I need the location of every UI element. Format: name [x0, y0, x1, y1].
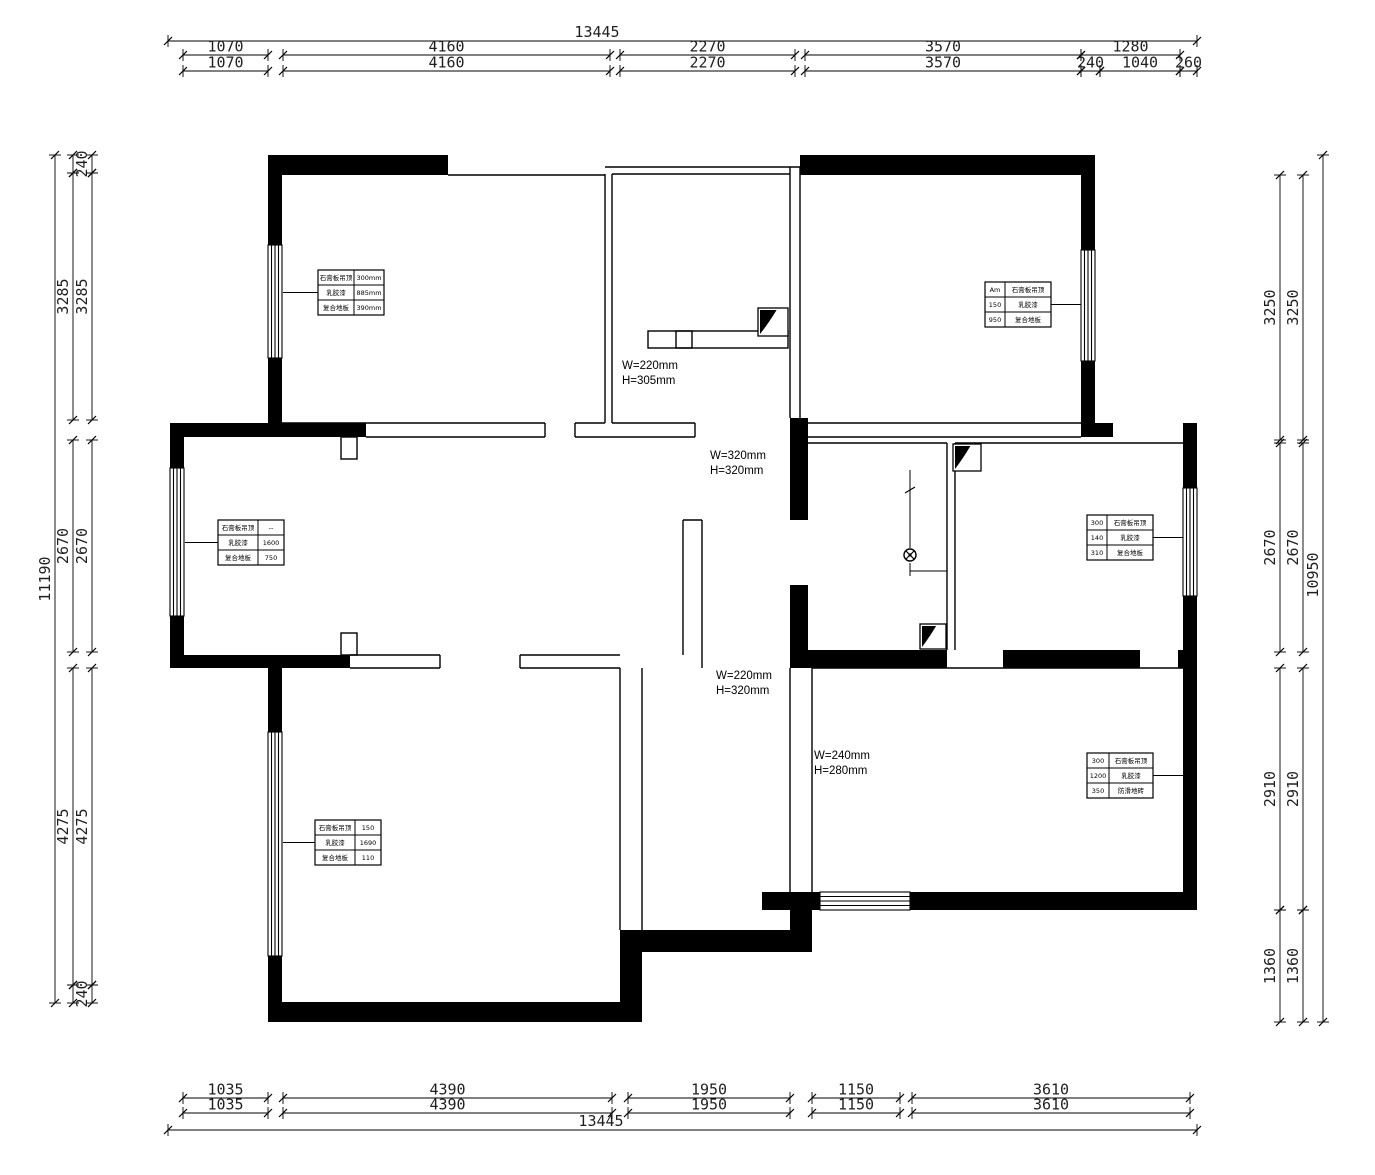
dim-text: 13445 [574, 23, 619, 41]
dim-text: 2910 [1284, 771, 1302, 807]
wall-segment [762, 892, 820, 910]
dim-text: 乳胶漆 [228, 538, 248, 547]
dim-text: 复合地板 [1117, 548, 1144, 557]
dim-text: 260 [1175, 54, 1202, 72]
dim-text: 石膏板吊顶 [1115, 756, 1148, 765]
dim-text: -- [269, 524, 274, 532]
dim-text: 140 [1091, 534, 1103, 542]
dim-text: 防滑地砖 [1118, 786, 1145, 795]
size-annotation: W=240mm [814, 750, 870, 762]
dim-text: 300mm [356, 274, 381, 282]
dim-text: 石膏板吊顶 [222, 523, 255, 532]
finish-table: 300石膏板吊顶1200乳胶漆350防滑地砖 [1087, 753, 1183, 798]
wall-segment [170, 655, 350, 668]
dim-text: 150 [362, 824, 374, 832]
dim-text: 1200 [1090, 772, 1107, 780]
wall-segment [341, 437, 357, 459]
finish-table: 石膏板吊顶150乳胶漆1690复合地板110 [283, 820, 381, 865]
dim-text: 885mm [356, 289, 381, 297]
window [820, 892, 910, 910]
light-symbol [904, 470, 947, 576]
dim-text: 石膏板吊顶 [1114, 518, 1147, 527]
wall-segment [1081, 423, 1113, 437]
size-annotation: W=320mm [710, 450, 766, 462]
window [1081, 250, 1095, 361]
wall-segment [790, 418, 808, 520]
dim-text: 1600 [263, 539, 280, 547]
finish-table: Am石膏板吊顶150乳胶漆950复合地板 [985, 282, 1081, 327]
size-annotation: H=320mm [710, 465, 763, 477]
dim-text: 4160 [428, 54, 464, 72]
dim-text: 3570 [925, 54, 961, 72]
dim-text: 10950 [1304, 552, 1322, 597]
dim-text: 复合地板 [225, 553, 252, 562]
dim-text: 3285 [73, 278, 91, 314]
dim-text: 乳胶漆 [325, 838, 345, 847]
dim-text: 390mm [356, 304, 381, 312]
finish-table: 石膏板吊顶300mm乳胶漆885mm复合地板390mm [283, 270, 384, 315]
wall-segment [620, 930, 812, 952]
wall-segment [790, 585, 808, 668]
wall-segment [170, 423, 184, 468]
wall-segment [170, 423, 366, 437]
dim-text: 110 [362, 854, 374, 862]
finish-table: 石膏板吊顶--乳胶漆1600复合地板750 [185, 520, 284, 565]
counter-bracket [676, 331, 692, 348]
dim-text: 3285 [54, 278, 72, 314]
dim-text: 11190 [36, 556, 54, 601]
size-annotation: H=305mm [622, 375, 675, 387]
plan-shape [908, 553, 911, 556]
dim-text: 750 [265, 554, 277, 562]
wall-segment [268, 668, 282, 732]
window [1183, 488, 1197, 596]
dim-text: 乳胶漆 [326, 288, 346, 297]
size-annotation: H=280mm [814, 765, 867, 777]
finish-table: 300石膏板吊顶140乳胶漆310复合地板 [1087, 515, 1183, 560]
dim-text: 石膏板吊顶 [1012, 285, 1045, 294]
wall-segment [808, 650, 947, 668]
dim-text: 1360 [1284, 948, 1302, 984]
shaft-symbol [758, 308, 788, 336]
dim-text: 3250 [1284, 289, 1302, 325]
dim-text: 240 [73, 980, 91, 1007]
wall-segment [1003, 650, 1140, 668]
wall-segment [268, 1002, 642, 1022]
window [268, 732, 282, 956]
dim-text: 3610 [1033, 1096, 1069, 1114]
window [268, 245, 282, 358]
dim-text: 1040 [1122, 54, 1158, 72]
dim-text: Am [990, 286, 1001, 294]
dim-text: 2270 [689, 54, 725, 72]
dim-text: 1360 [1261, 948, 1279, 984]
dim-text: 复合地板 [322, 853, 349, 862]
dim-text: 1690 [360, 839, 377, 847]
size-annotation: W=220mm [716, 670, 772, 682]
size-annotation: H=320mm [716, 685, 769, 697]
dim-text: 石膏板吊顶 [320, 273, 353, 282]
dim-text: 310 [1091, 549, 1103, 557]
wall-segment [1183, 668, 1197, 910]
size-annotation: W=220mm [622, 360, 678, 372]
shaft-symbol [953, 444, 981, 471]
dim-text: 2670 [1284, 529, 1302, 565]
dim-text: 1070 [207, 54, 243, 72]
dim-text: 复合地板 [1015, 315, 1042, 324]
wall-segment [910, 892, 1197, 910]
wall-segment [1183, 423, 1197, 488]
wall-segment [800, 155, 1095, 175]
wall-segment [268, 155, 448, 175]
dim-text: 13445 [578, 1112, 623, 1130]
dim-text: 石膏板吊顶 [319, 823, 352, 832]
dim-text: 4275 [54, 808, 72, 844]
wall-segment [1081, 155, 1095, 250]
dim-text: 240 [73, 150, 91, 177]
wall-segment [1178, 650, 1197, 668]
dim-text: 350 [1092, 787, 1104, 795]
dim-text: 复合地板 [323, 303, 350, 312]
wall-segment [341, 633, 357, 655]
dim-text: 3250 [1261, 289, 1279, 325]
finish-table-layer: 石膏板吊顶300mm乳胶漆885mm复合地板390mmAm石膏板吊顶150乳胶漆… [185, 270, 1183, 865]
dim-text: 1035 [207, 1096, 243, 1114]
dim-text: 4275 [73, 808, 91, 844]
window [170, 468, 184, 616]
dim-text: 300 [1092, 757, 1104, 765]
dim-text: 150 [989, 301, 1001, 309]
dim-text: 4390 [429, 1096, 465, 1114]
floor-plan-page: 1344510704160227035701280107041602270357… [0, 0, 1375, 1175]
dim-text: 1150 [838, 1096, 874, 1114]
dim-text: 乳胶漆 [1018, 300, 1038, 309]
dim-text: 2670 [54, 528, 72, 564]
dim-text: 1950 [691, 1096, 727, 1114]
dim-text: 乳胶漆 [1121, 771, 1141, 780]
floor-plan-svg: 1344510704160227035701280107041602270357… [0, 0, 1375, 1175]
dim-text: 950 [989, 316, 1001, 324]
dim-text: 300 [1091, 519, 1103, 527]
dim-text: 2670 [73, 528, 91, 564]
wall-segment [268, 155, 282, 245]
shaft-symbol [920, 624, 946, 649]
dim-text: 乳胶漆 [1120, 533, 1140, 542]
dim-text: 2910 [1261, 771, 1279, 807]
dim-text: 2670 [1261, 529, 1279, 565]
